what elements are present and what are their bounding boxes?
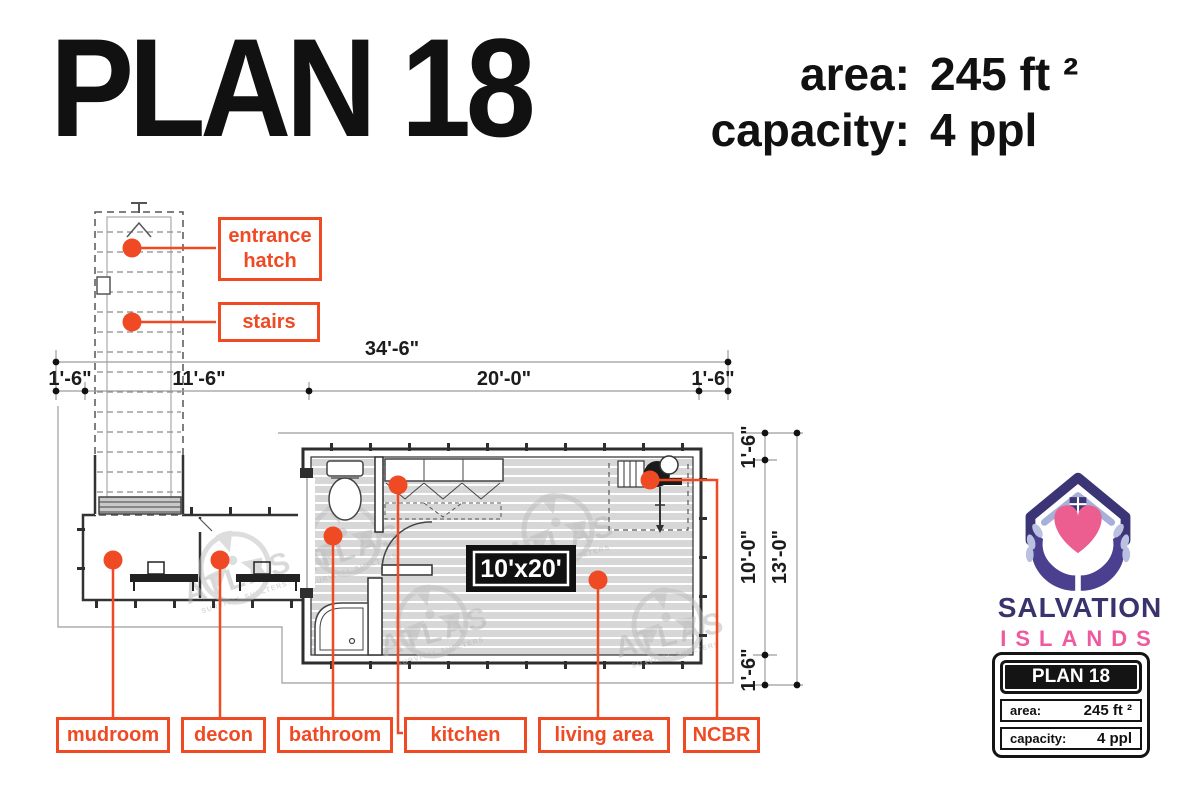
dim-top-margin: 1'-6" <box>738 425 760 468</box>
card-title: PLAN 18 <box>1003 663 1139 691</box>
decon-door-opening <box>298 468 315 598</box>
dim-right-margin: 1'-6" <box>691 368 734 390</box>
dim-container-depth: 10'-0" <box>738 530 760 584</box>
size-tag: 10'x20' <box>466 545 576 592</box>
callout-stairs: stairs <box>218 302 320 342</box>
dim-left-margin: 1'-6" <box>48 368 91 390</box>
heart-icon <box>1054 505 1101 553</box>
dim-bottom-margin: 1'-6" <box>738 648 760 691</box>
room-label-ncbr: NCBR <box>683 717 760 753</box>
card-capacity-value: 4 ppl <box>1097 730 1132 747</box>
room-label-living-area: living area <box>538 717 670 753</box>
dim-total-depth: 13'-0" <box>769 530 791 584</box>
salvation-islands-logo-icon <box>1008 465 1148 595</box>
callout-entrance-hatch: entrance hatch <box>218 217 322 281</box>
room-label-bathroom: bathroom <box>277 717 393 753</box>
dim-container-width: 20'-0" <box>477 368 531 390</box>
card-capacity-row: capacity: 4 ppl <box>1000 727 1142 750</box>
room-label-decon: decon <box>181 717 266 753</box>
card-capacity-label: capacity: <box>1010 731 1066 746</box>
plan-summary-card: PLAN 18 area: 245 ft ² capacity: 4 ppl <box>992 652 1150 758</box>
card-title-bar: PLAN 18 <box>1000 660 1142 694</box>
dimensions-vertical: 1'-6" 10'-0" 1'-6" 13'-0" <box>738 425 803 691</box>
brand-line2: ISLANDS <box>980 626 1180 652</box>
dim-stair-bay: 11'-6" <box>172 368 225 390</box>
room-label-kitchen: kitchen <box>404 717 527 753</box>
dim-total-width: 34'-6" <box>365 338 419 360</box>
card-area-value: 245 ft ² <box>1084 702 1132 719</box>
card-area-row: area: 245 ft ² <box>1000 699 1142 722</box>
card-area-label: area: <box>1010 703 1041 718</box>
size-tag-text: 10'x20' <box>480 555 561 583</box>
room-label-mudroom: mudroom <box>56 717 170 753</box>
brand-line1: SALVATION <box>980 592 1180 624</box>
brand-wordmark: SALVATION ISLANDS <box>980 592 1180 652</box>
